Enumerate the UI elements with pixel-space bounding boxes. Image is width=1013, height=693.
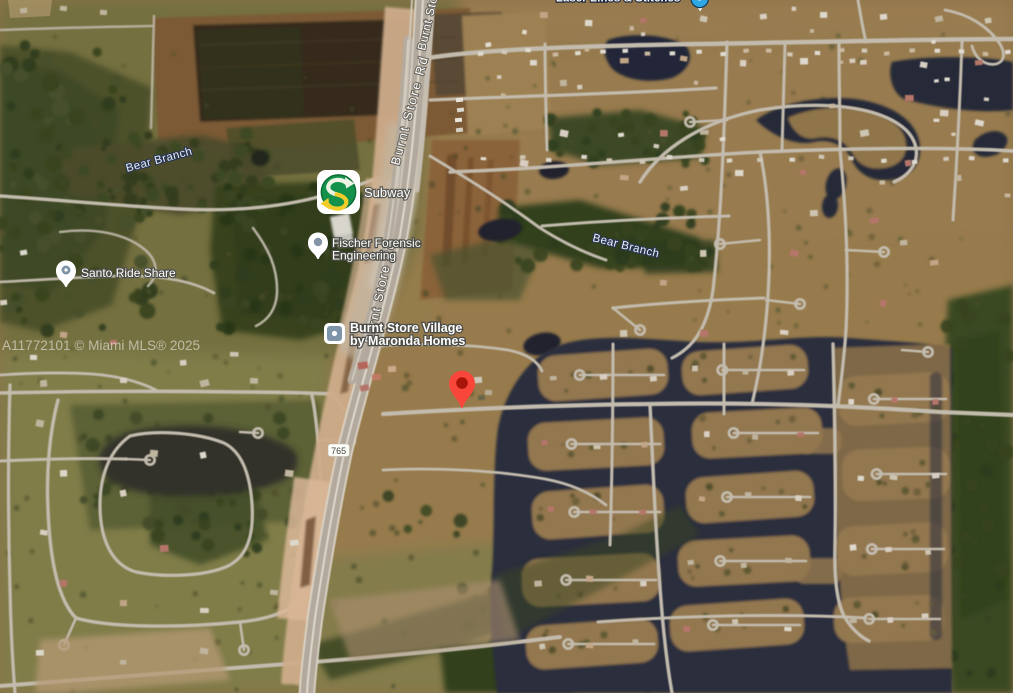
svg-text:Engineering: Engineering [332,249,396,263]
svg-text:Subway: Subway [364,185,411,200]
svg-text:by Maronda Homes: by Maronda Homes [350,334,465,348]
svg-text:A11772101 © Miami MLS® 2025: A11772101 © Miami MLS® 2025 [2,338,200,353]
svg-text:Santo Ride Share: Santo Ride Share [81,266,176,280]
svg-text:765: 765 [331,446,346,456]
svg-text:Laser Lines & Stitches: Laser Lines & Stitches [556,0,680,5]
svg-text:Burnt Store Village: Burnt Store Village [350,321,462,335]
